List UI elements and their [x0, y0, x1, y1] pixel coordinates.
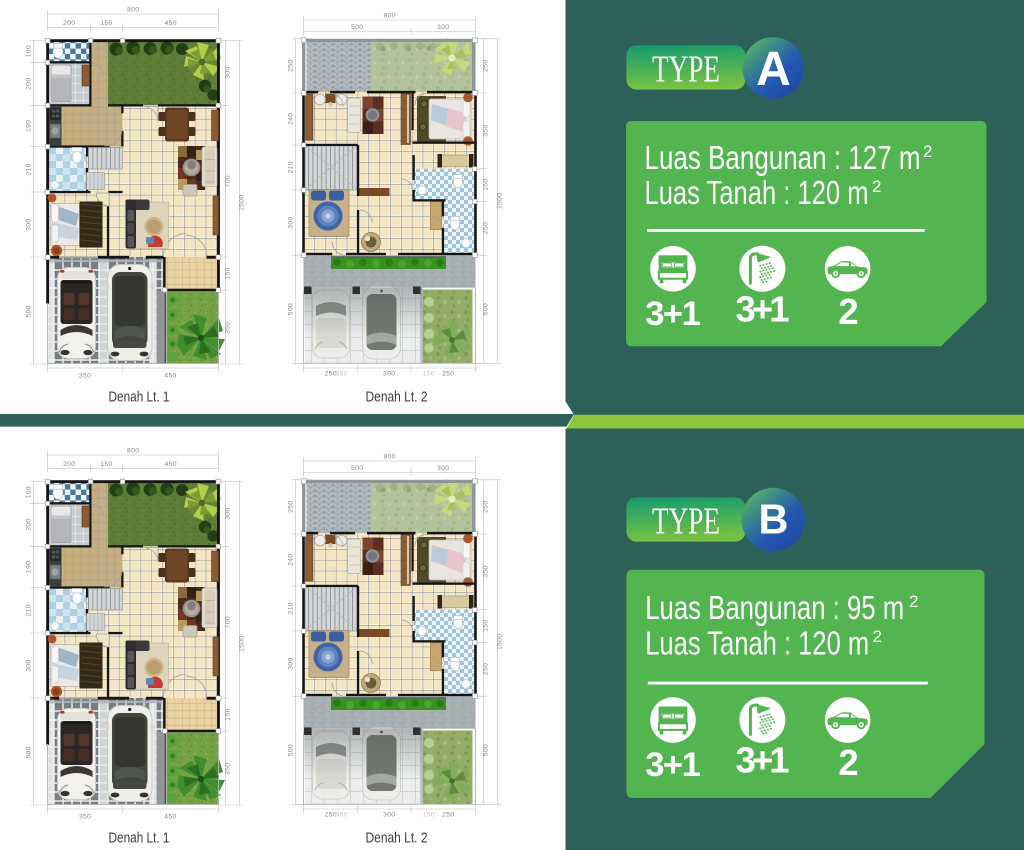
svg-text:2: 2 — [873, 627, 882, 646]
svg-text:Luas Tanah : 120 m: Luas Tanah : 120 m — [645, 175, 869, 212]
svg-text:2: 2 — [872, 177, 881, 196]
svg-text:2: 2 — [909, 592, 918, 611]
svg-text:Luas Bangunan : 95 m: Luas Bangunan : 95 m — [645, 590, 904, 627]
svg-text:B: B — [759, 496, 789, 543]
svg-text:A: A — [756, 43, 791, 96]
svg-text:Luas Tanah : 120 m: Luas Tanah : 120 m — [645, 625, 869, 662]
svg-text:Luas Bangunan : 127 m: Luas Bangunan : 127 m — [645, 140, 921, 177]
svg-text:2: 2 — [923, 142, 932, 161]
